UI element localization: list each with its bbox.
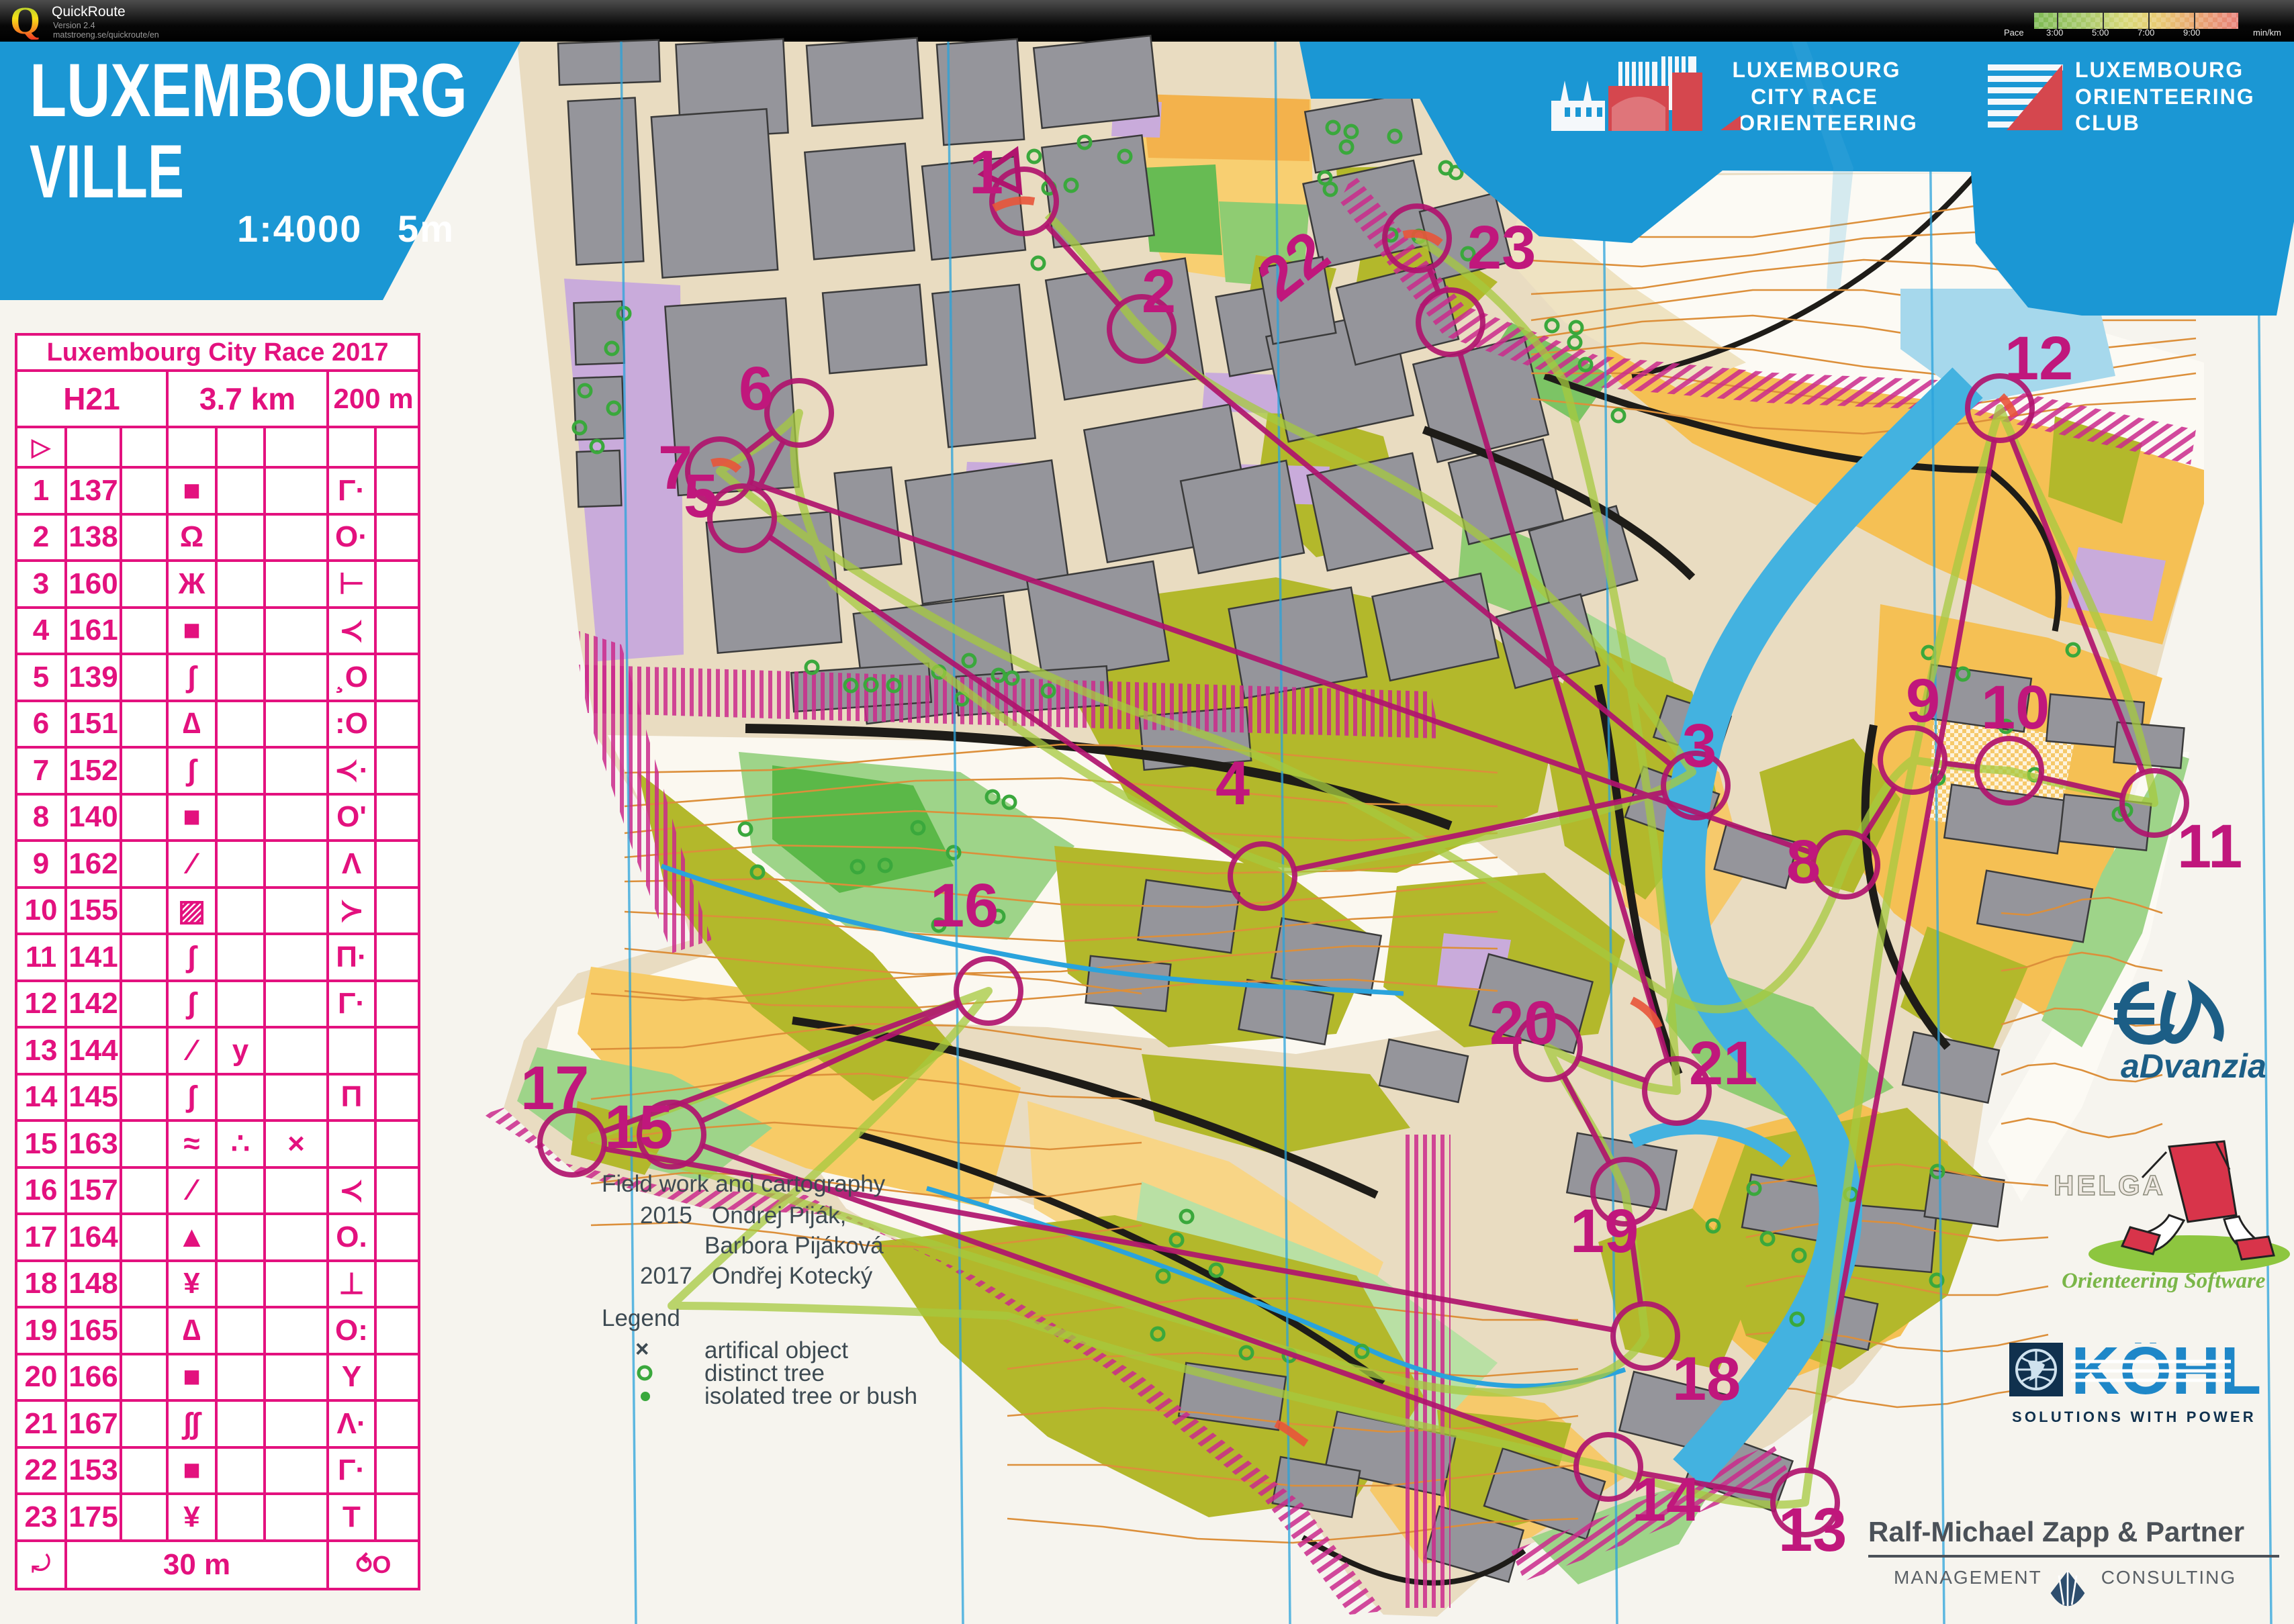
svg-text:3: 3	[1682, 712, 1716, 780]
svg-text:SOLUTIONS WITH POWER: SOLUTIONS WITH POWER	[2012, 1408, 2256, 1425]
svg-text:18: 18	[1672, 1345, 1741, 1413]
svg-text:15: 15	[604, 1093, 673, 1161]
svg-text:2: 2	[1142, 257, 1176, 326]
svg-text:11: 11	[2177, 812, 2242, 881]
svg-text:CITY RACE: CITY RACE	[1751, 85, 1878, 109]
svg-text:1:4000 5m: 1:4000 5m	[237, 207, 453, 250]
svg-text:ORIENTEERING: ORIENTEERING	[1738, 111, 1918, 135]
svg-text:10: 10	[1981, 673, 2050, 742]
svg-text:8: 8	[1786, 828, 1821, 896]
svg-text:6: 6	[739, 354, 773, 423]
svg-text:21: 21	[1689, 1029, 1757, 1098]
svg-text:1: 1	[969, 138, 1003, 207]
svg-text:16: 16	[930, 871, 999, 940]
svg-text:14: 14	[1632, 1466, 1700, 1534]
svg-text:HELGA: HELGA	[2054, 1169, 2166, 1201]
svg-text:17: 17	[520, 1054, 589, 1123]
svg-text:9: 9	[1906, 667, 1940, 735]
svg-text:20: 20	[1489, 989, 1558, 1057]
svg-text:aDvanzia: aDvanzia	[2121, 1047, 2266, 1085]
svg-text:13: 13	[1778, 1496, 1847, 1564]
svg-text:VILLE: VILLE	[30, 130, 184, 213]
svg-text:Orienteering Software: Orienteering Software	[2062, 1269, 2265, 1293]
svg-text:LUXEMBOURG: LUXEMBOURG	[2075, 58, 2244, 82]
svg-text:12: 12	[2005, 324, 2073, 393]
svg-text:ORIENTEERING: ORIENTEERING	[2075, 85, 2255, 109]
svg-text:KÖHL: KÖHL	[2071, 1343, 2261, 1408]
svg-text:CLUB: CLUB	[2075, 111, 2140, 135]
svg-text:4: 4	[1215, 749, 1250, 818]
svg-text:7: 7	[658, 434, 692, 502]
svg-text:LUXEMBOURG: LUXEMBOURG	[30, 48, 467, 132]
svg-text:19: 19	[1570, 1197, 1639, 1265]
svg-text:LUXEMBOURG: LUXEMBOURG	[1732, 58, 1900, 82]
